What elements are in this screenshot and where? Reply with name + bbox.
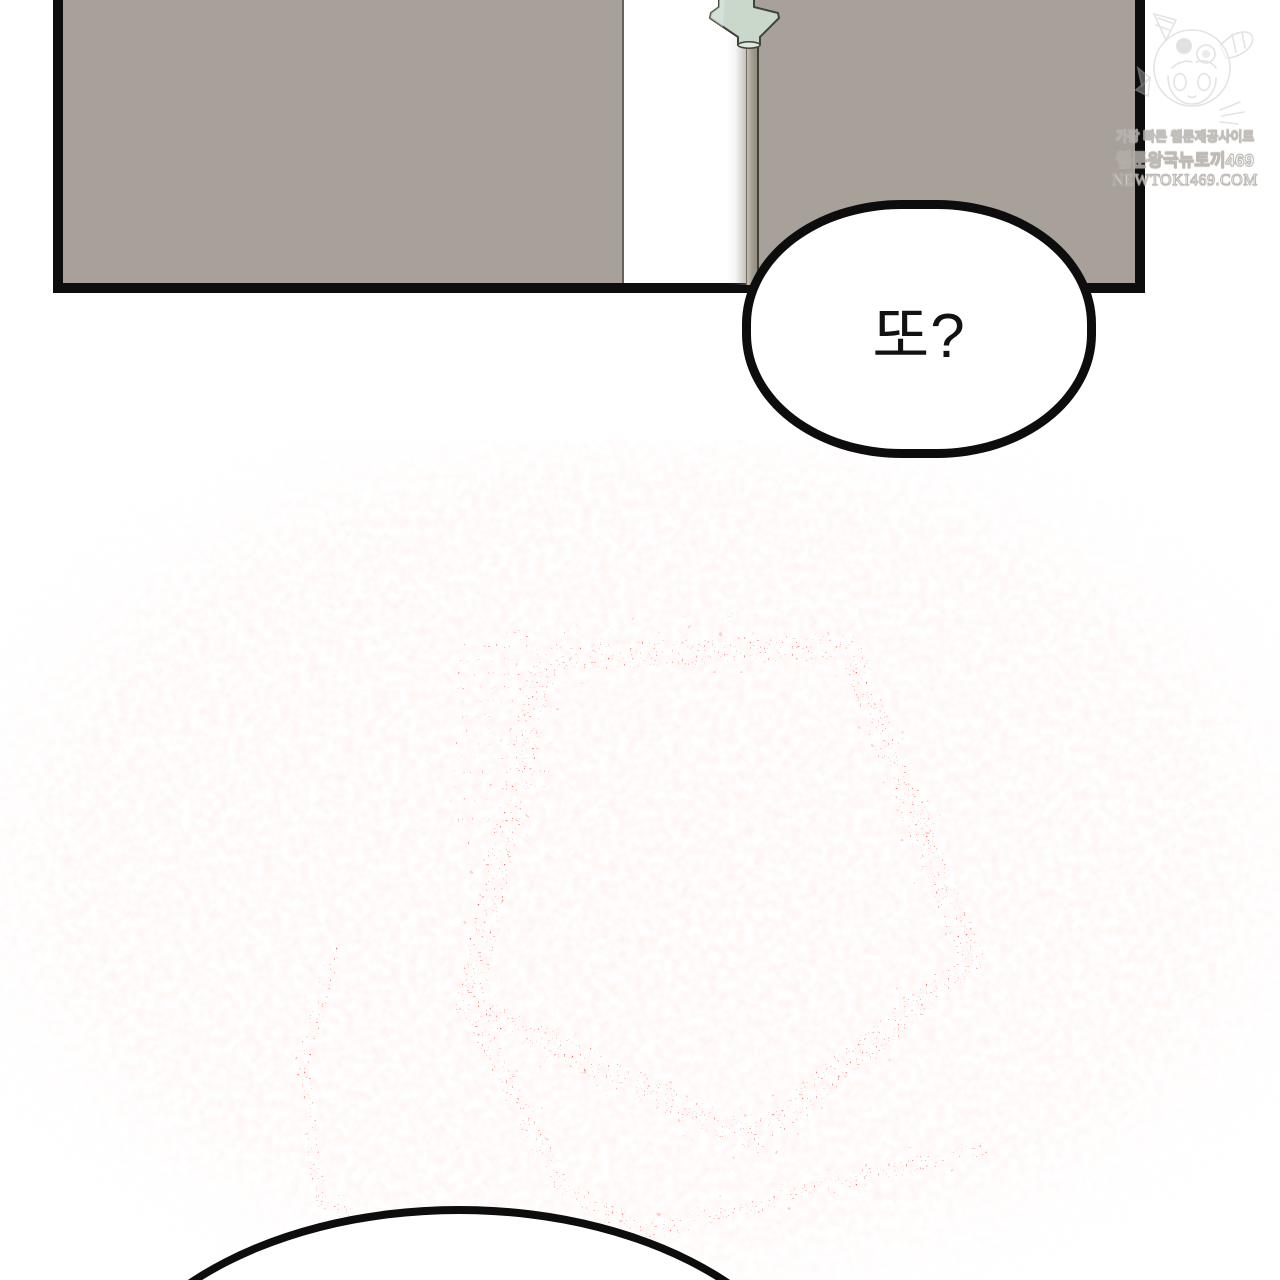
- syringe-needle: [746, 40, 759, 285]
- needle-shadow: [726, 38, 747, 285]
- comic-page: 또? 가장: [0, 0, 1280, 1280]
- mascot-bunny-girl-icon: [1128, 6, 1262, 140]
- speech-text: 또?: [872, 285, 966, 375]
- speech-bubble: 또?: [742, 200, 1096, 458]
- speech-bubble-partial: [90, 1206, 828, 1280]
- syringe-nozzle-art: [703, 0, 787, 50]
